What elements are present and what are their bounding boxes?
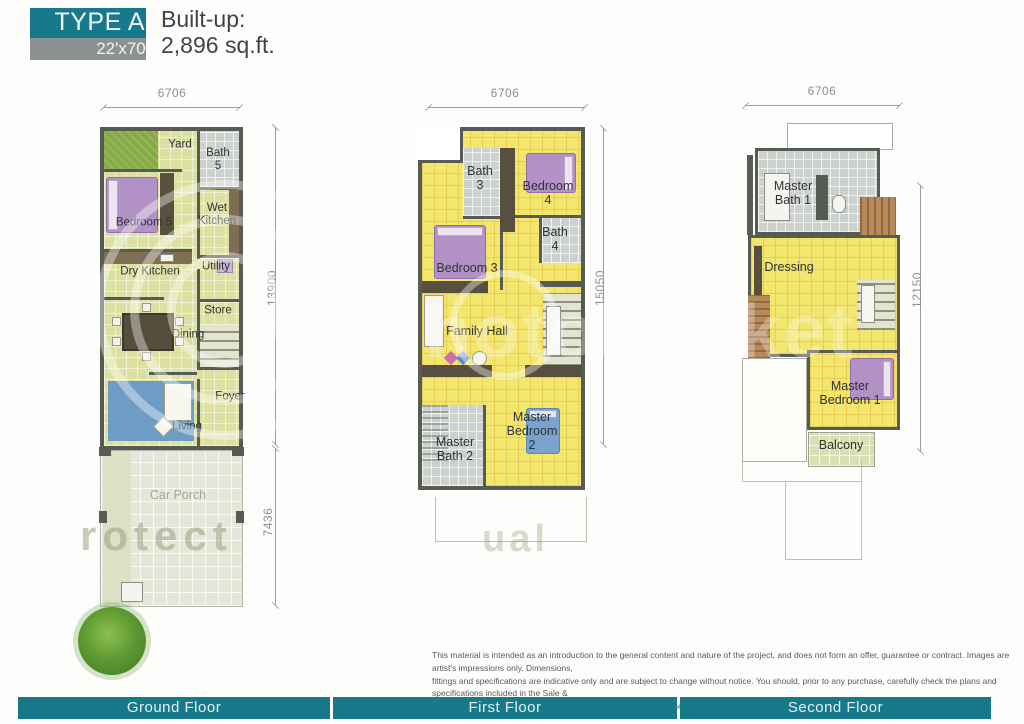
footer-bar-ground: Ground Floor	[18, 697, 330, 719]
size-label-bar: 22'x70'	[30, 38, 146, 60]
lower-roof-outline-2	[785, 482, 862, 560]
watermark-small-text: ual	[482, 518, 549, 561]
room-label-master-bedroom2: Master Bedroom 2	[507, 410, 558, 452]
size-label: 22'x70'	[96, 39, 146, 59]
dim-first-width: 6706	[491, 86, 520, 100]
footer-bar-second: Second Floor	[680, 697, 991, 719]
builtup-label: Built-up:	[161, 6, 245, 33]
watermark-ring	[167, 252, 283, 368]
tree-icon	[78, 607, 146, 675]
room-label-yard: Yard	[168, 139, 191, 152]
wardrobe-icon	[500, 148, 515, 232]
plan-notch	[418, 127, 463, 163]
type-label-bar: TYPE A	[30, 8, 146, 38]
room-label-car-porch: Car Porch	[150, 488, 206, 502]
lower-roof-outline	[742, 462, 862, 482]
room-label-bath5: Bath 5	[206, 147, 230, 173]
dim-second-width: 6706	[808, 84, 837, 98]
entrance-step	[121, 582, 143, 602]
dim-ground-width: 6706	[158, 86, 187, 100]
dim-ground-porch: 7436	[261, 508, 275, 537]
room-label-bath3: Bath 3	[467, 164, 493, 192]
room-label-balcony: Balcony	[819, 438, 863, 452]
dim-line-second-right	[920, 185, 921, 452]
footer-bar-first: First Floor	[333, 697, 677, 719]
dim-line-second-top	[745, 105, 900, 106]
room-label-bath4: Bath 4	[542, 225, 568, 253]
watermark-brand-text: hotobucket	[425, 288, 855, 375]
dim-line-first-top	[428, 107, 585, 108]
room-label-master-bedroom1: Master Bedroom 1	[819, 379, 880, 407]
stair-rail	[861, 285, 875, 323]
dim-second-depth: 12150	[910, 272, 924, 308]
floorplan-sheet: TYPE A 22'x70' Built-up: 2,896 sq.ft. 67…	[0, 0, 1024, 724]
timber-deck	[860, 197, 896, 235]
watermark-protect-text: rotect	[80, 512, 233, 560]
room-label-bedroom4: Bedroom 4	[523, 179, 574, 207]
room-label-master-bath2: Master Bath 2	[436, 435, 474, 463]
type-label: TYPE A	[54, 8, 145, 37]
grass-patch	[104, 131, 158, 169]
room-label-master-bath1: Master Bath 1	[774, 179, 812, 207]
roof-terrace-outline	[787, 123, 893, 150]
builtup-value: 2,896 sq.ft.	[161, 32, 275, 59]
room-label-dressing: Dressing	[764, 260, 813, 274]
toilet-icon	[832, 195, 846, 213]
dim-line-ground-porch	[275, 448, 276, 606]
dim-line-ground-top	[103, 107, 240, 108]
